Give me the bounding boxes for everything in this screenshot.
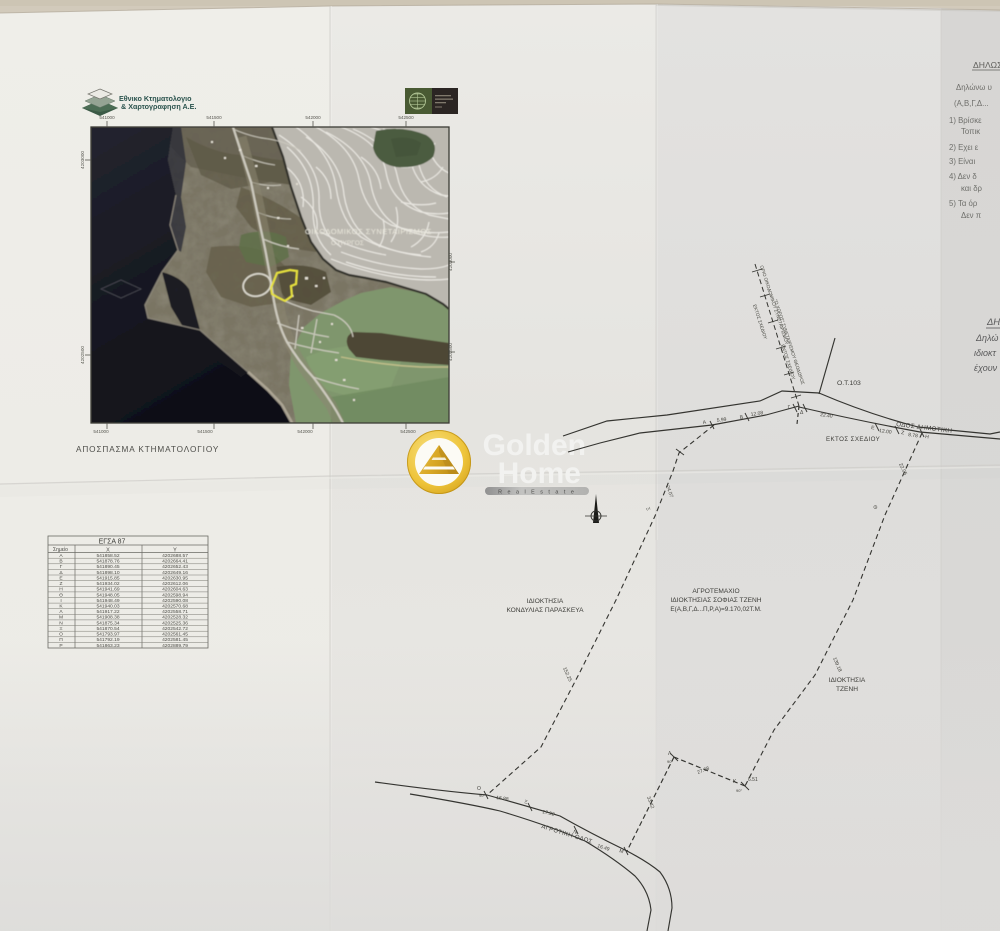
svg-text:ΕΚΤΟΣ ΣΧΕΔΙΟΥ: ΕΚΤΟΣ ΣΧΕΔΙΟΥ	[826, 436, 880, 443]
svg-text:Δηλώνω υ: Δηλώνω υ	[956, 83, 992, 92]
svg-text:ΑΠΟΣΠΑΣΜΑ ΚΤΗΜΑΤΟΛΟΓΙΟΥ: ΑΠΟΣΠΑΣΜΑ ΚΤΗΜΑΤΟΛΟΓΙΟΥ	[76, 445, 219, 454]
svg-text:542000: 542000	[297, 429, 313, 434]
svg-text:6.51: 6.51	[748, 777, 758, 783]
svg-text:Home: Home	[498, 457, 581, 490]
svg-text:ΕΓΣΑ 87: ΕΓΣΑ 87	[99, 539, 126, 546]
svg-text:5) Τα όρ: 5) Τα όρ	[949, 199, 978, 208]
svg-text:4) Δεν δ: 4) Δεν δ	[949, 172, 977, 181]
svg-text:έχουν: έχουν	[974, 363, 998, 373]
svg-text:90°: 90°	[479, 793, 485, 798]
svg-text:ΚΟΝΔΥΛΙΑΣ ΠΑΡΑΣΚΕΥΑ: ΚΟΝΔΥΛΙΑΣ ΠΑΡΑΣΚΕΥΑ	[506, 607, 584, 614]
svg-text:542500: 542500	[398, 115, 414, 120]
svg-text:Δεν π: Δεν π	[961, 211, 982, 220]
svg-text:Ο ΠΥΡΓΟΣ: Ο ΠΥΡΓΟΣ	[331, 240, 364, 247]
svg-text:4203000: 4203000	[448, 253, 453, 271]
svg-text:90°: 90°	[667, 759, 673, 764]
svg-text:και δρ: και δρ	[961, 184, 983, 193]
svg-text:Τοπικ: Τοπικ	[961, 127, 980, 136]
svg-text:3) Είναι: 3) Είναι	[949, 157, 975, 166]
svg-text:542500: 542500	[400, 429, 416, 434]
svg-text:& Χαρτογραφηση Α.Ε.: & Χαρτογραφηση Α.Ε.	[121, 102, 196, 111]
svg-text:R e a l E s t a t e: R e a l E s t a t e	[498, 490, 576, 496]
svg-text:Ρ: Ρ	[59, 643, 62, 649]
svg-text:4203000: 4203000	[80, 151, 85, 169]
svg-text:Ο: Ο	[477, 786, 481, 792]
svg-text:ΔΗΛ: ΔΗΛ	[986, 316, 1000, 327]
svg-text:542000: 542000	[305, 115, 321, 120]
svg-text:(Α,Β,Γ,Δ...: (Α,Β,Γ,Δ...	[954, 99, 989, 108]
svg-text:1) Βρίσκε: 1) Βρίσκε	[949, 116, 982, 125]
svg-text:ιδιοκτ: ιδιοκτ	[974, 348, 997, 358]
svg-text:Y: Y	[173, 548, 177, 554]
svg-text:ΤΖΕΝΗ: ΤΖΕΝΗ	[836, 686, 858, 693]
svg-text:541500: 541500	[197, 429, 213, 434]
svg-text:4202500: 4202500	[80, 346, 85, 364]
svg-text:4202500: 4202500	[448, 343, 453, 361]
svg-text:ΙΔΙΟΚΤΗΣΙΑΣ ΣΟΦΙΑΣ ΤΖΕΝΗ: ΙΔΙΟΚΤΗΣΙΑΣ ΣΟΦΙΑΣ ΤΖΕΝΗ	[670, 597, 761, 604]
svg-text:ΟΙΚΟΔΟΜΙΚΟΣ ΣΥΝΕΤΑΙΡΙΣΜΟΣ: ΟΙΚΟΔΟΜΙΚΟΣ ΣΥΝΕΤΑΙΡΙΣΜΟΣ	[305, 227, 432, 236]
svg-text:4202889.79: 4202889.79	[162, 643, 188, 649]
svg-text:Ε(Α,Β,Γ,Δ...Π,Ρ,Α)=9.170,02Τ.Μ: Ε(Α,Β,Γ,Δ...Π,Ρ,Α)=9.170,02Τ.Μ.	[670, 606, 762, 613]
svg-text:X: X	[106, 548, 110, 554]
svg-text:ΔΗΛΩΣ: ΔΗΛΩΣ	[973, 60, 1000, 70]
svg-text:541000: 541000	[93, 429, 109, 434]
svg-text:2) Εχει ε: 2) Εχει ε	[949, 143, 979, 152]
svg-text:541863.23: 541863.23	[96, 643, 119, 649]
svg-text:541500: 541500	[206, 115, 222, 120]
svg-text:541000: 541000	[99, 115, 115, 120]
svg-text:ΙΔΙΟΚΤΗΣΙΑ: ΙΔΙΟΚΤΗΣΙΑ	[527, 598, 564, 605]
svg-text:90°: 90°	[736, 788, 742, 793]
svg-text:ΙΔΙΟΚΤΗΣΙΑ: ΙΔΙΟΚΤΗΣΙΑ	[829, 677, 866, 684]
svg-text:Δηλώ: Δηλώ	[975, 333, 998, 343]
svg-text:ΑΓΡΟΤΕΜΑΧΙΟ: ΑΓΡΟΤΕΜΑΧΙΟ	[692, 588, 739, 595]
svg-text:Ο.Τ.103: Ο.Τ.103	[837, 380, 861, 387]
svg-text:Σημείο: Σημείο	[53, 547, 68, 553]
